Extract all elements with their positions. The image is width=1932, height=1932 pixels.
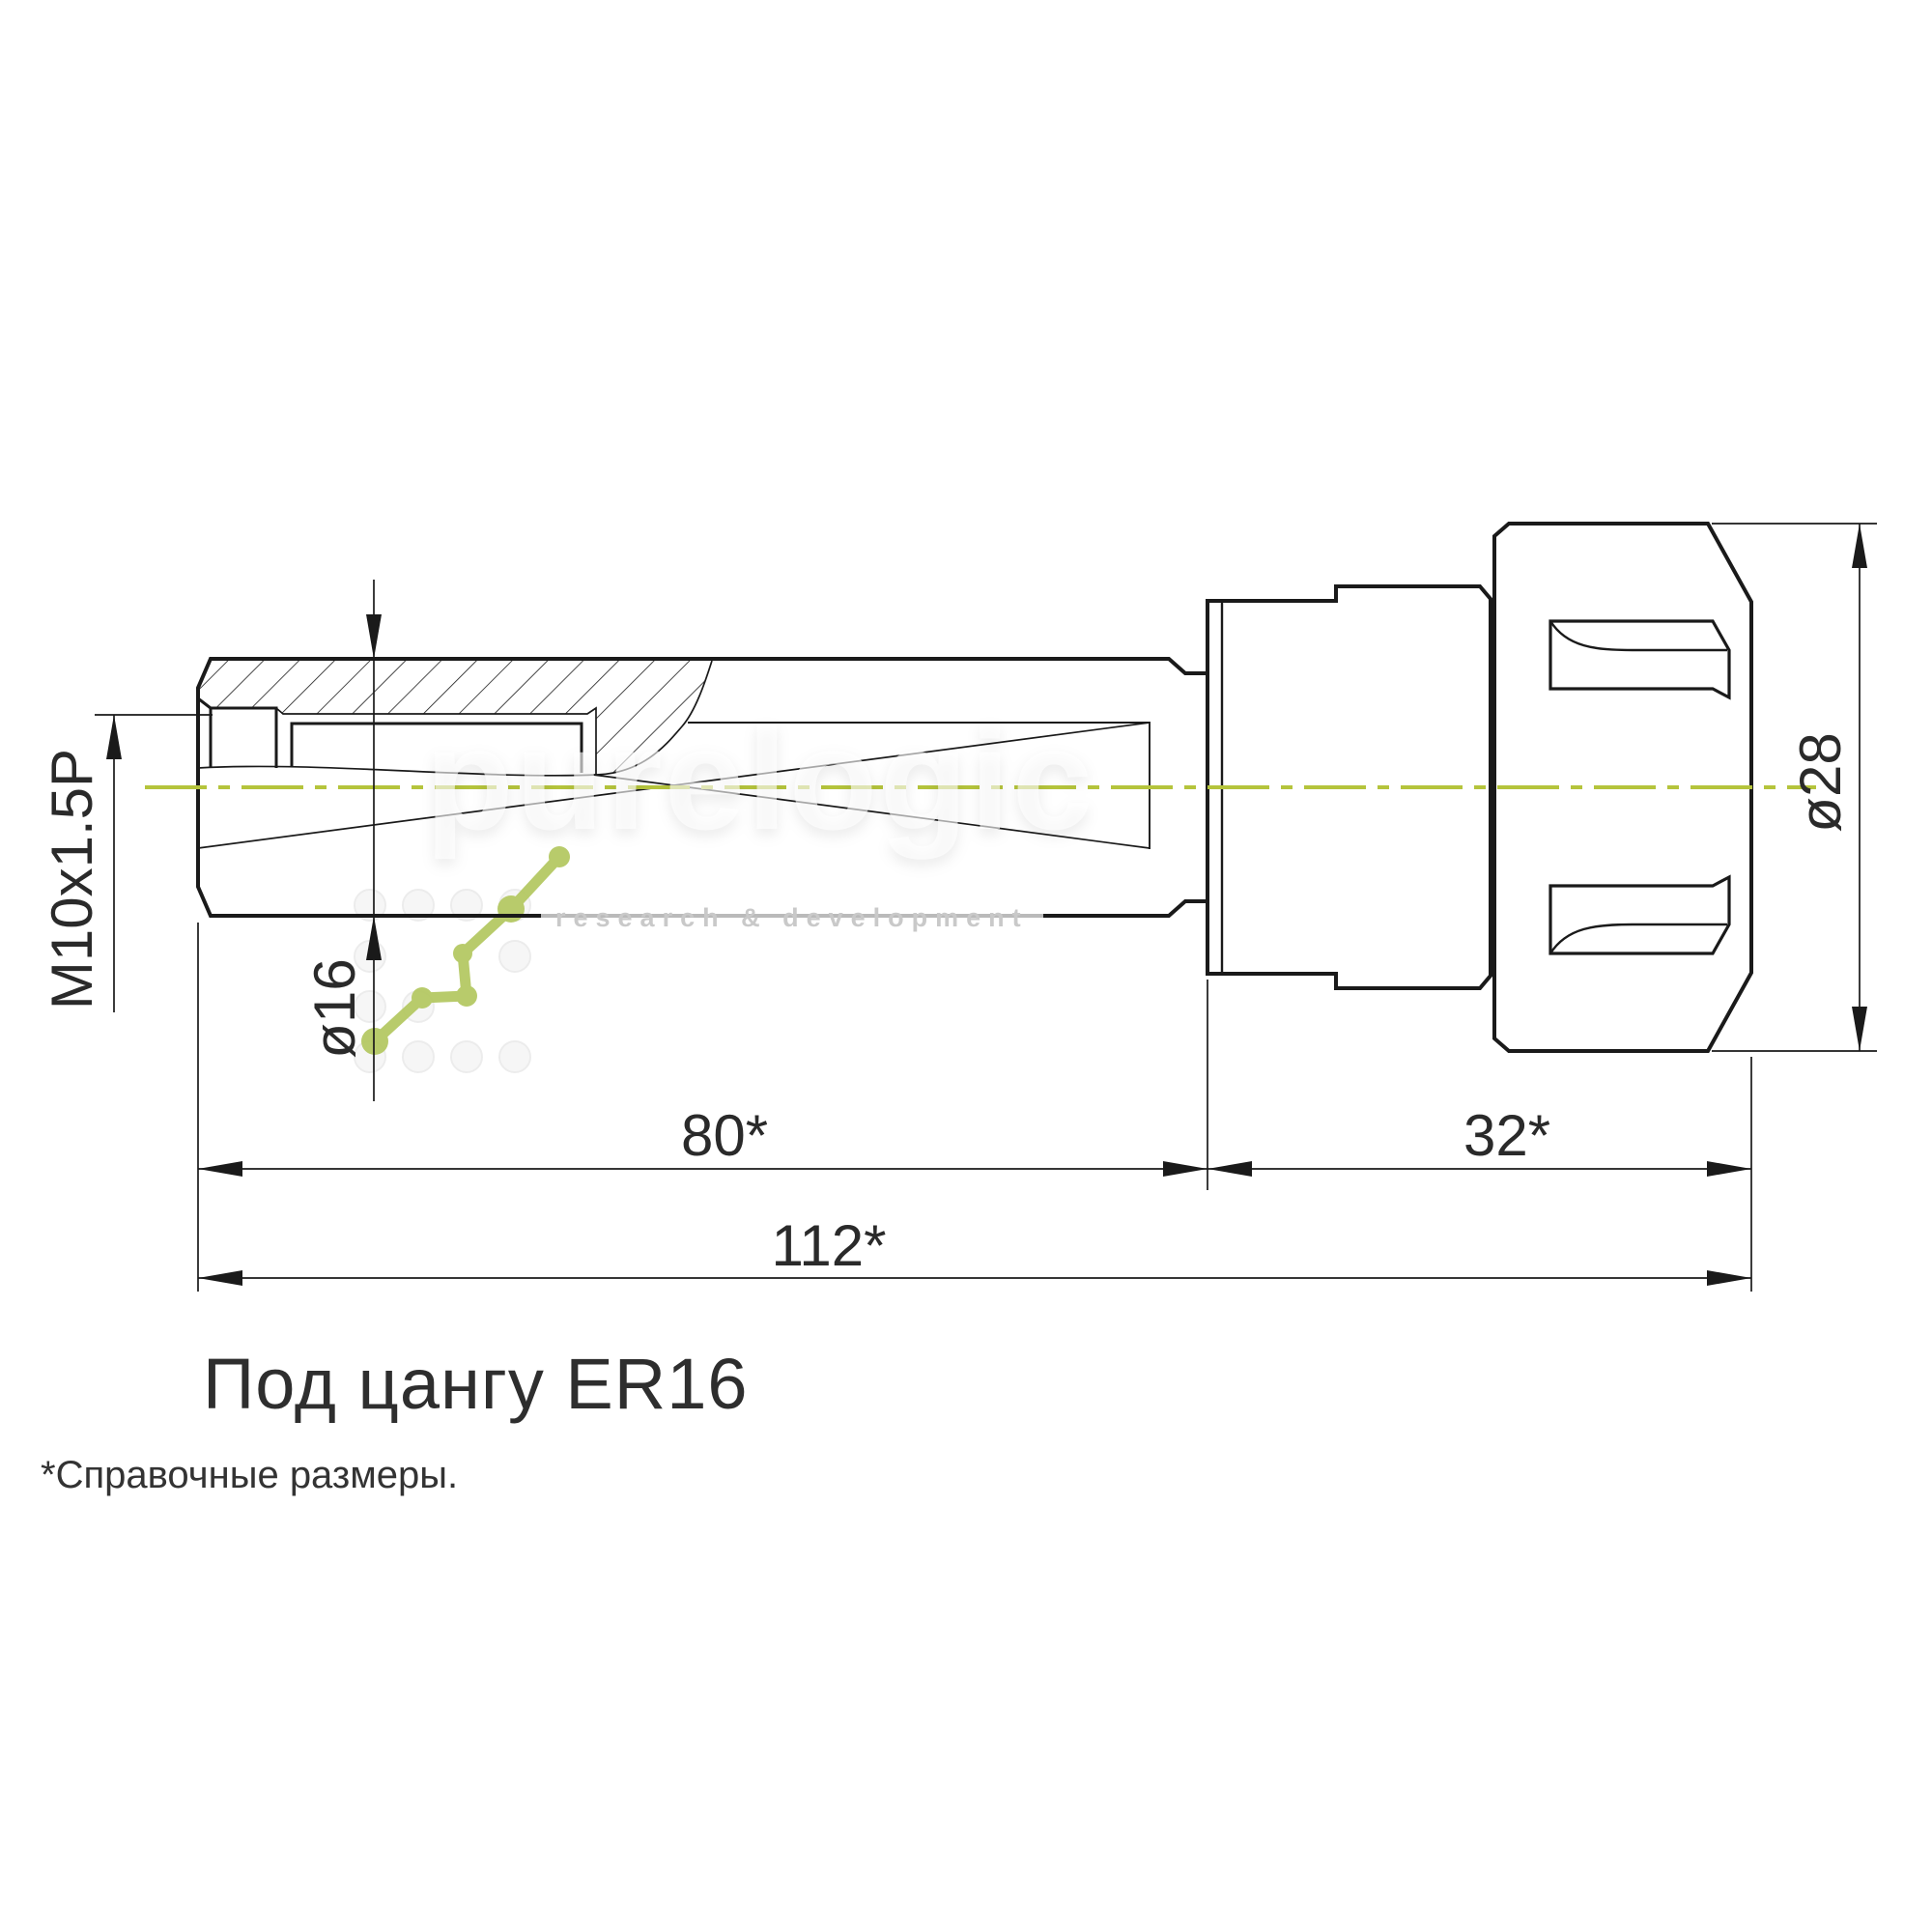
logo-dot-chain bbox=[361, 846, 570, 1055]
nut-slot-lower bbox=[1550, 877, 1729, 953]
watermark-tagline: research & development bbox=[555, 903, 1029, 932]
footnote: *Справочные размеры. bbox=[41, 1454, 458, 1496]
watermark-brand: purelogic bbox=[425, 697, 1094, 860]
collet-note: Под цангу ER16 bbox=[203, 1344, 749, 1424]
dim-label-d28: ø28 bbox=[1788, 732, 1853, 832]
dim-label-m10: M10x1.5P bbox=[40, 749, 104, 1009]
dim-label-80: 80* bbox=[681, 1103, 768, 1168]
dim-label-d16: ø16 bbox=[302, 958, 367, 1058]
drawing-page: M10x1.5P ø16 80* 32* 112* ø28 Под цангу … bbox=[0, 0, 1932, 1932]
nut-slot-upper bbox=[1550, 621, 1729, 697]
dim-label-32: 32* bbox=[1463, 1103, 1550, 1168]
dim-label-112: 112* bbox=[771, 1213, 886, 1278]
technical-drawing: M10x1.5P ø16 80* 32* 112* ø28 Под цангу … bbox=[0, 0, 1932, 1932]
